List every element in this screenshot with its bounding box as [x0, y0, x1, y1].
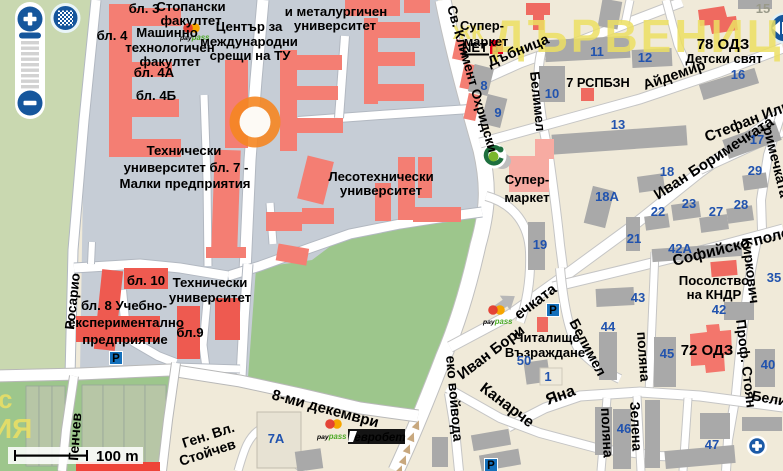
- svg-text:университет бл. 7 -: университет бл. 7 -: [124, 160, 249, 175]
- svg-text:45: 45: [660, 346, 674, 361]
- svg-text:P: P: [487, 460, 495, 471]
- svg-text:paypass: paypass: [482, 317, 513, 326]
- svg-text:бл. 4А: бл. 4А: [134, 65, 175, 80]
- svg-text:бл.9: бл.9: [176, 325, 203, 340]
- svg-text:бл. 4Б: бл. 4Б: [136, 88, 177, 103]
- svg-text:Стопански: Стопански: [156, 0, 225, 14]
- svg-text:Посолство: Посолство: [679, 273, 749, 288]
- svg-text:35: 35: [767, 270, 781, 285]
- svg-text:42А: 42А: [668, 241, 692, 256]
- svg-text:бл. 10: бл. 10: [127, 273, 165, 288]
- svg-text:40: 40: [761, 357, 775, 372]
- svg-text:с: с: [0, 384, 12, 414]
- svg-text:Машинно: Машинно: [136, 25, 198, 40]
- svg-text:1: 1: [544, 369, 551, 384]
- svg-text:9: 9: [494, 105, 501, 120]
- svg-text:Технически: Технически: [173, 275, 248, 290]
- svg-text:P: P: [112, 353, 120, 365]
- svg-text:университет: университет: [294, 18, 377, 33]
- svg-text:72 ОДЗ: 72 ОДЗ: [681, 342, 734, 359]
- svg-text:ИЯ: ИЯ: [0, 413, 32, 444]
- svg-text:13: 13: [611, 117, 625, 132]
- svg-text:университет: университет: [169, 290, 252, 305]
- svg-text:47: 47: [705, 437, 719, 452]
- svg-text:28: 28: [734, 197, 748, 212]
- svg-text:42: 42: [712, 302, 726, 317]
- svg-text:бл. 3: бл. 3: [129, 1, 160, 16]
- svg-text:бл. 8 Учебно-: бл. 8 Учебно-: [81, 298, 167, 313]
- svg-text:и металургичен: и металургичен: [285, 4, 387, 19]
- svg-text:поляна: поляна: [598, 407, 617, 458]
- svg-text:евробет: евробет: [354, 432, 405, 444]
- svg-text:43: 43: [631, 290, 645, 305]
- svg-text:46: 46: [617, 421, 631, 436]
- svg-text:P: P: [549, 305, 557, 317]
- svg-text:10: 10: [545, 86, 559, 101]
- svg-text:100 m: 100 m: [96, 448, 139, 465]
- svg-text:21: 21: [627, 231, 641, 246]
- svg-text:22: 22: [651, 204, 665, 219]
- svg-text:18А: 18А: [595, 189, 619, 204]
- svg-text:29: 29: [748, 163, 762, 178]
- svg-text:7 РСПБЗН: 7 РСПБЗН: [566, 75, 630, 90]
- svg-text:на КНДР: на КНДР: [687, 287, 742, 302]
- svg-text:23: 23: [682, 196, 696, 211]
- svg-text:Център за: Център за: [216, 19, 283, 34]
- svg-text:18: 18: [660, 164, 674, 179]
- svg-text:19: 19: [533, 237, 547, 252]
- svg-text:12: 12: [638, 50, 652, 65]
- svg-text:международни: международни: [200, 34, 298, 49]
- svg-text:срещи на ТУ: срещи на ТУ: [210, 48, 292, 63]
- svg-text:Генчев: Генчев: [65, 412, 84, 461]
- svg-text:paypass: paypass: [316, 432, 347, 441]
- svg-text:университет: университет: [340, 183, 423, 198]
- svg-text:бл. 4: бл. 4: [97, 28, 129, 43]
- svg-text:50: 50: [517, 353, 531, 368]
- svg-text:8: 8: [480, 78, 487, 93]
- svg-text:маркет: маркет: [504, 190, 550, 205]
- svg-text:Технически: Технически: [147, 143, 222, 158]
- svg-text:Малки предприятия: Малки предприятия: [119, 176, 250, 191]
- svg-text:27: 27: [709, 204, 723, 219]
- svg-text:Лесотехнически: Лесотехнически: [328, 169, 433, 184]
- svg-text:11: 11: [590, 44, 604, 59]
- svg-text:Супер-: Супер-: [505, 172, 550, 187]
- svg-text:16: 16: [731, 67, 745, 82]
- svg-text:7А: 7А: [268, 431, 285, 446]
- svg-text:15: 15: [756, 1, 770, 16]
- svg-text:предприятие: предприятие: [82, 332, 167, 347]
- svg-text:експериментално: експериментално: [68, 315, 184, 330]
- svg-text:17: 17: [750, 132, 764, 147]
- svg-text:44: 44: [601, 319, 616, 334]
